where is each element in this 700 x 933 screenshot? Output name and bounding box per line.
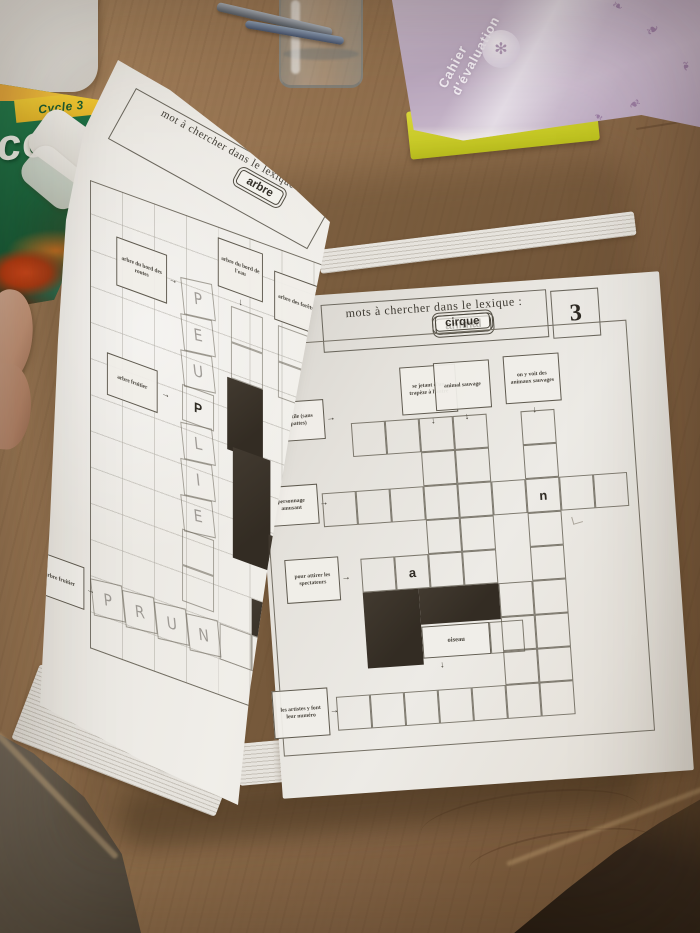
- right-page: mots à chercher dans le lexique : animal…: [248, 271, 694, 799]
- grid-cell: [360, 556, 396, 592]
- arrow-right-icon: →: [326, 412, 336, 423]
- pencil-letter-cell: U: [154, 601, 190, 645]
- grid-cell: [537, 646, 573, 682]
- grid-cell: [351, 421, 387, 457]
- clue-oiseau: oiseau: [421, 622, 491, 659]
- grid-cell: [336, 694, 372, 730]
- grid-cell: [530, 545, 566, 581]
- black-cell-bar: [419, 583, 501, 624]
- clue-animal-sauvage: animal sauvage: [433, 359, 492, 411]
- drinking-glass: [279, 0, 363, 88]
- grid-cell: [462, 549, 498, 585]
- grid-cell: [535, 612, 571, 648]
- grid-cell: [520, 409, 556, 445]
- floral-flourish: ❧: [641, 18, 663, 42]
- grid-cell: [532, 578, 568, 614]
- clue-artistes: les artistes y font leur numéro: [271, 687, 330, 739]
- grid-cell: [356, 489, 392, 525]
- white-cloth: [0, 0, 98, 92]
- medallion-glyph: ✻: [494, 39, 507, 59]
- grid-cell: [539, 680, 575, 716]
- arrow-down-icon: ↓: [238, 296, 242, 308]
- grid-cell: [505, 683, 541, 719]
- grid-cell: [453, 414, 489, 450]
- arrow-down-icon: ↓: [440, 659, 445, 669]
- grid-cell: [498, 581, 534, 617]
- right-header-title: mots à chercher dans le lexique :: [345, 294, 523, 320]
- clue-attirer: pour attirer les spectateurs: [284, 556, 341, 604]
- grid-cell: [491, 479, 527, 515]
- floral-flourish: ❧: [677, 59, 695, 73]
- pencil-letter-cell: R: [122, 590, 158, 634]
- black-cell-block: [233, 447, 271, 571]
- arrow-right-icon: →: [341, 572, 351, 583]
- grid-cell: [428, 552, 464, 588]
- grid-cell: [421, 450, 457, 486]
- letter-cell-n: n: [525, 477, 561, 513]
- grid-cell: [503, 649, 539, 685]
- grid-cell: [426, 518, 462, 554]
- grid-cell: [460, 515, 496, 551]
- grid-cell: [457, 481, 493, 517]
- grid-cell: [423, 484, 459, 520]
- clue-on-y-voit: on y voit des animaux sauvages: [503, 352, 562, 404]
- grid-cell: [370, 692, 406, 728]
- floral-flourish: ❧: [623, 92, 645, 115]
- grid-cell: [404, 690, 440, 726]
- grid-cell: [389, 486, 425, 522]
- pencil-letter-cell: P: [90, 578, 126, 622]
- black-cell-block: [363, 589, 424, 669]
- medallion-logo: ✻: [482, 30, 520, 68]
- grid-cell: [523, 443, 559, 479]
- grid-cell: [322, 491, 358, 527]
- grid-cell: [472, 685, 508, 721]
- floral-flourish: ❧: [609, 0, 626, 16]
- pencil-letter-cell: N: [186, 613, 222, 657]
- grid-cell: [455, 448, 491, 484]
- grid-cell: [385, 418, 421, 454]
- grid-cell: [593, 472, 629, 508]
- grid-cell: [489, 620, 525, 654]
- grid-cell: [438, 687, 474, 723]
- letter-cell-a: a: [394, 554, 430, 590]
- grid-cell: [528, 511, 564, 547]
- grid-cell: [559, 474, 595, 510]
- grid-cell: [419, 416, 455, 452]
- photo-scene: Cahier d'évaluation ✻ ❧ ❧ ❧ ❧ ❧ Cycle 3 …: [0, 0, 700, 933]
